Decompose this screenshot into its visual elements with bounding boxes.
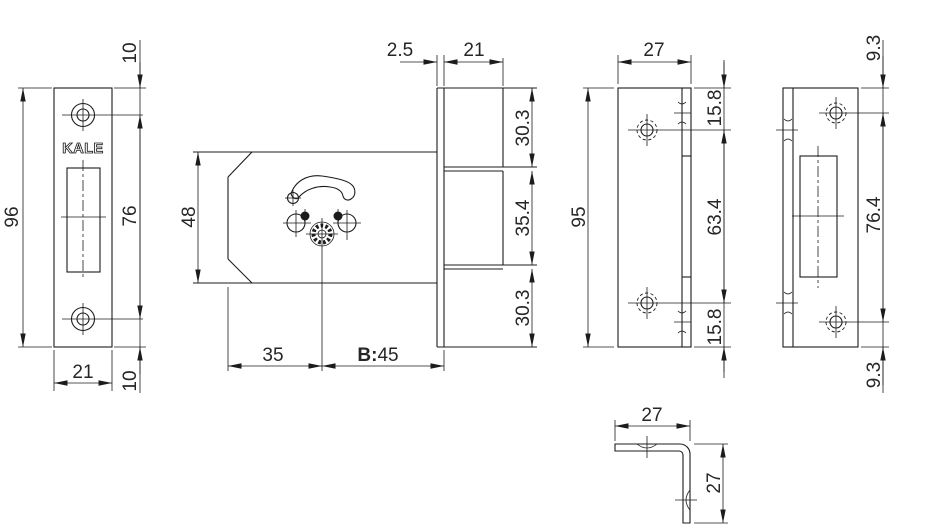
- dim-label-21: 21: [72, 362, 93, 383]
- strike-hole-top: [819, 97, 889, 129]
- dimension-hole-offsets: 10 76 10: [114, 40, 146, 393]
- dim-label-15-8-top: 15.8: [705, 90, 726, 127]
- dim-label-10-top: 10: [120, 42, 141, 63]
- strike-hole-bottom: [819, 306, 889, 338]
- dim-label-27-bracket-w: 27: [641, 405, 662, 426]
- dim-label-2-5: 2.5: [387, 40, 413, 61]
- dimension-cover-height-95: 95: [569, 88, 614, 347]
- dim-label-35-4: 35.4: [513, 199, 534, 236]
- dim-label-27-cover: 27: [643, 40, 664, 61]
- dim-label-30-3-lower: 30.3: [513, 290, 534, 327]
- dim-label-96: 96: [2, 206, 23, 227]
- dim-label-35: 35: [262, 345, 283, 366]
- brand-logo: KALE: [62, 141, 103, 157]
- dim-label-b45: B:45: [357, 345, 398, 366]
- dim-label-76-4: 76.4: [864, 196, 885, 233]
- bracket-countersink-top: [637, 436, 657, 458]
- dim-label-30-3-upper: 30.3: [513, 110, 534, 147]
- angle-bracket-view: 27 27: [615, 405, 728, 523]
- lock-technical-drawing: KALE 96 10 76 10: [0, 0, 930, 530]
- dim-label-21-depth: 21: [463, 40, 484, 61]
- dim-label-15-8-bottom: 15.8: [705, 309, 726, 346]
- pin-hole-left: [283, 209, 311, 237]
- dim-label-10-bottom: 10: [120, 370, 141, 391]
- dim-label-63-4: 63.4: [705, 198, 726, 235]
- dim-label-76: 76: [120, 205, 141, 226]
- lock-body-side-view: 48 35 B:45 2.5 21 30.3 35.4 30.3: [179, 40, 537, 371]
- dim-label-48: 48: [179, 206, 200, 227]
- screw-hole-top: [62, 99, 143, 131]
- dim-label-9-3-bottom: 9.3: [864, 362, 885, 388]
- lock-case-outline: [193, 152, 437, 283]
- dimension-width-21: 21: [54, 350, 112, 391]
- cover-plate-view: 27 95 15.8 63.4 15.8: [569, 40, 731, 378]
- dimension-cover-hole-offsets: 15.8 63.4 15.8: [694, 60, 731, 378]
- dim-label-95: 95: [569, 206, 590, 227]
- key-slot-crescent: [291, 176, 355, 200]
- dimension-strike-offsets: 9.3 76.4 9.3: [861, 35, 889, 393]
- dimension-side-sections: 30.3 35.4 30.3: [513, 88, 534, 347]
- strike-plate-view: 9.3 76.4 9.3: [776, 35, 889, 393]
- dimension-bracket-width-27: 27: [615, 405, 690, 441]
- dimension-plate-thickness-and-depth: 2.5 21: [387, 40, 503, 86]
- technical-drawing-page: KALE 96 10 76 10: [0, 0, 930, 530]
- dimension-backset: 35 B:45: [228, 250, 444, 371]
- angle-bracket-outline: [615, 444, 690, 523]
- dimension-bracket-height-27: 27: [694, 444, 728, 523]
- strike-plate-outline: [783, 88, 858, 347]
- pin-hole-right: [333, 209, 361, 240]
- cover-plate-outline: [618, 88, 691, 347]
- keyhole-escutcheon: [283, 176, 361, 250]
- screw-hole-bottom: [62, 303, 143, 335]
- bracket-countersink-side: [675, 490, 697, 510]
- dimension-body-height-48: 48: [179, 152, 200, 283]
- dimension-height-96: 96: [2, 88, 52, 347]
- dim-label-27-bracket-h: 27: [704, 472, 725, 493]
- dim-label-9-3-top: 9.3: [864, 35, 885, 61]
- faceplate-front-view: KALE 96 10 76 10: [2, 40, 146, 393]
- bolt-slot: [61, 160, 106, 280]
- dimension-cover-width-27: 27: [618, 40, 691, 84]
- strike-slot: [792, 146, 844, 288]
- bend-line: [674, 88, 691, 347]
- strike-bend-line: [776, 88, 798, 347]
